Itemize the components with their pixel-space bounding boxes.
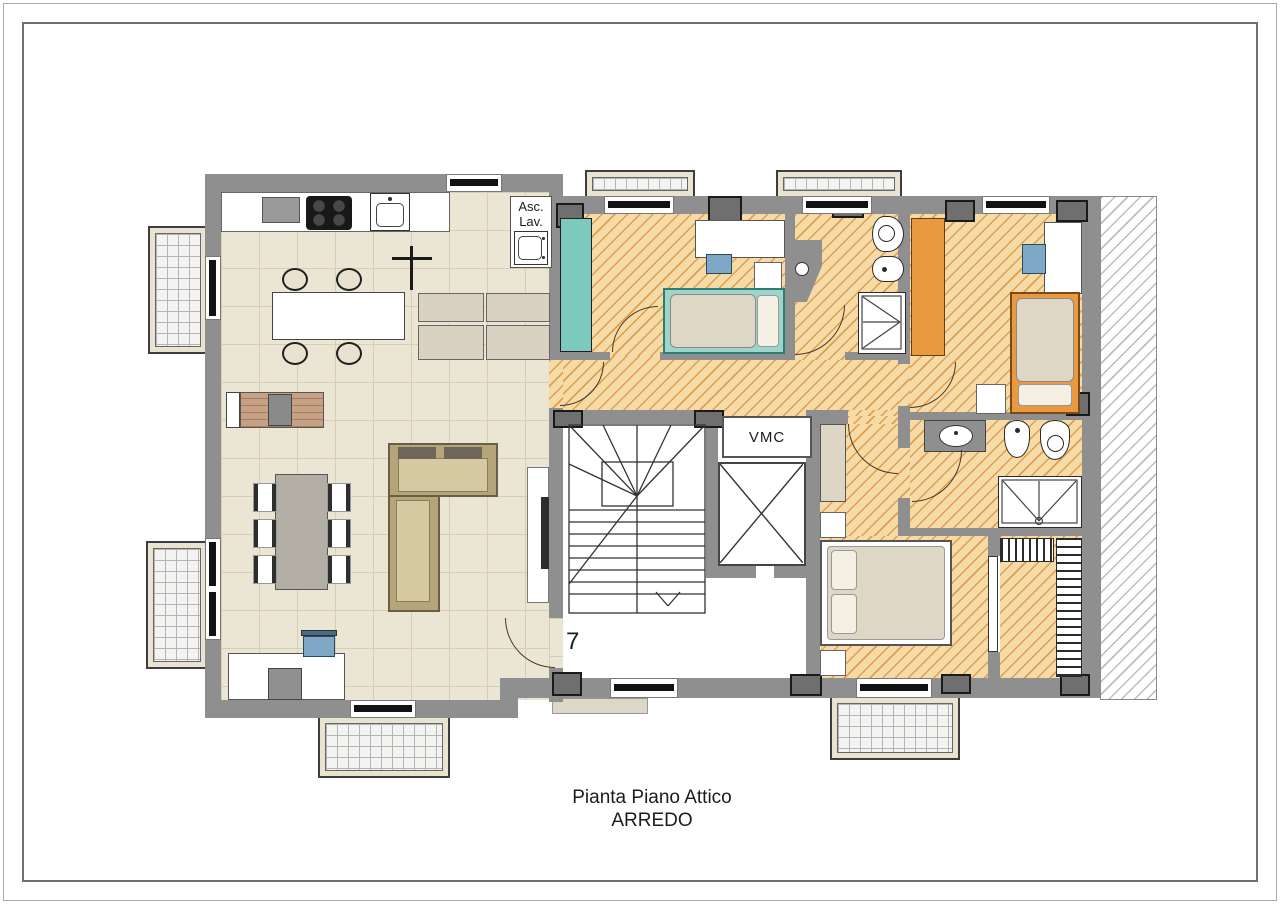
window-glass xyxy=(209,542,216,586)
drawing-title: Pianta Piano Attico ARREDO xyxy=(502,786,802,832)
wardrobe-master xyxy=(820,424,846,502)
shower-tray xyxy=(858,292,906,354)
tv-icon xyxy=(541,497,549,569)
shower-drain-lines xyxy=(859,293,904,352)
mattress xyxy=(1016,298,1074,382)
dining-table xyxy=(275,474,328,590)
closet-divider-wall xyxy=(988,652,1000,690)
bathroom2-bottom-wall xyxy=(898,528,1082,536)
pier xyxy=(945,200,975,222)
utility-closet: Asc. Lav. xyxy=(510,196,552,268)
closet-shelves xyxy=(1056,538,1082,677)
desk-chair xyxy=(706,254,732,274)
stair-elevator-wall xyxy=(706,424,718,578)
balcony-grid xyxy=(592,177,688,191)
elevator-bottom-wall xyxy=(706,566,756,578)
sideboard-base xyxy=(226,392,240,428)
window-glass xyxy=(209,592,216,636)
nightstand xyxy=(754,262,782,290)
dining-chair xyxy=(328,556,350,583)
window-glass xyxy=(608,201,670,208)
sideboard-center xyxy=(268,394,292,426)
mattress xyxy=(670,294,756,348)
kitchen-island-table xyxy=(272,292,405,340)
vmc-label: VMC xyxy=(724,429,810,446)
desk-chair xyxy=(303,636,335,657)
pillow xyxy=(757,295,779,347)
pillow xyxy=(1018,384,1072,406)
window-glass xyxy=(354,705,412,712)
balcony-bottom-1 xyxy=(318,716,450,778)
apartment-number: 7 xyxy=(566,628,579,656)
stove-icon xyxy=(306,196,352,230)
bed-double xyxy=(820,540,952,646)
floor-plan-sheet: Asc. Lav. xyxy=(0,0,1280,904)
stool xyxy=(282,342,308,365)
washer-icon xyxy=(514,231,548,265)
pier xyxy=(1056,200,1088,222)
sink-basin xyxy=(939,425,973,447)
sliding-door-leaf xyxy=(988,556,998,652)
drawing-title-line1: Pianta Piano Attico xyxy=(502,786,802,809)
pier xyxy=(1060,674,1090,696)
window-glass xyxy=(614,684,674,691)
balcony-grid xyxy=(837,703,953,753)
exterior-wall-right xyxy=(1082,196,1100,698)
desk-bedroom2 xyxy=(1044,222,1082,294)
window-glass xyxy=(986,201,1046,208)
pillow xyxy=(831,550,857,590)
utility-closet-label-line1: Asc. xyxy=(518,199,543,214)
toilet-bowl xyxy=(878,225,895,242)
sink-counter xyxy=(924,420,986,452)
elevator-bottom-wall xyxy=(774,566,818,578)
wardrobe-orange xyxy=(911,218,945,356)
balcony-top-1 xyxy=(585,170,695,198)
corridor-floor xyxy=(562,356,898,416)
elevator-x-icon xyxy=(720,464,803,563)
bed-single-1 xyxy=(663,288,785,354)
wardrobe-unit xyxy=(418,325,484,360)
shower-tray xyxy=(998,476,1082,528)
pier xyxy=(708,196,742,222)
exterior-wall-top-left xyxy=(205,174,562,192)
balcony-grid xyxy=(325,723,443,771)
wardrobe-unit xyxy=(486,325,550,360)
stairs xyxy=(568,424,706,614)
bidet-icon xyxy=(872,256,904,282)
washer-drum xyxy=(518,236,542,260)
balcony-left-bottom xyxy=(146,541,208,669)
washer-knob xyxy=(542,237,545,240)
balcony-left-top xyxy=(148,226,208,354)
stool xyxy=(336,342,362,365)
kitchen-living-floor xyxy=(221,192,549,700)
pier xyxy=(552,672,582,696)
living-partition-wall xyxy=(549,408,563,618)
corridor-top-wall xyxy=(562,352,610,360)
vmc-box: VMC xyxy=(722,416,812,458)
faucet-dot xyxy=(954,431,958,435)
range-hood xyxy=(262,197,300,223)
ceiling-cross-mark xyxy=(410,246,413,290)
window-glass xyxy=(860,684,928,691)
utility-closet-label-line2: Lav. xyxy=(519,214,543,229)
wardrobe-unit xyxy=(418,293,484,322)
bidet-faucet xyxy=(1015,428,1020,433)
sofa-cushion xyxy=(396,500,430,602)
bathroom2-threshold xyxy=(898,448,910,498)
entrance-landing xyxy=(552,698,648,714)
nightstand xyxy=(820,512,846,538)
window-glass xyxy=(806,201,868,208)
exterior-wall-step xyxy=(500,678,518,718)
dining-chair xyxy=(328,484,350,511)
sofa-back-cushion xyxy=(398,447,436,459)
dining-chair xyxy=(328,520,350,547)
balcony-grid xyxy=(783,177,895,191)
radiator-icon xyxy=(1000,538,1054,562)
window-glass xyxy=(450,179,498,186)
washer-knob xyxy=(542,256,545,259)
elevator-shaft xyxy=(718,462,806,566)
stool xyxy=(282,268,308,291)
utility-closet-label: Asc. Lav. xyxy=(511,199,551,229)
nightstand xyxy=(820,650,846,676)
window-glass xyxy=(209,260,216,316)
pier xyxy=(790,674,822,696)
desk-drawer xyxy=(268,668,302,700)
toilet-bowl xyxy=(1047,435,1064,452)
desk-chair xyxy=(1022,244,1046,274)
pier xyxy=(941,674,971,694)
sink-basin xyxy=(376,203,404,227)
drawing-title-line2: ARREDO xyxy=(502,809,802,832)
stool xyxy=(336,268,362,291)
nightstand xyxy=(976,384,1006,414)
balcony-bottom-2 xyxy=(830,696,960,760)
bathroom2-left-wall xyxy=(898,406,910,448)
wardrobe-teal xyxy=(560,218,592,352)
desk-chair-back xyxy=(301,630,337,636)
bed-single-2 xyxy=(1010,292,1080,414)
sofa-back-cushion xyxy=(444,447,482,459)
shower-drain-lines xyxy=(999,477,1080,526)
toilet-icon xyxy=(872,216,904,252)
sink-basin xyxy=(795,262,809,276)
balcony-grid xyxy=(155,233,201,347)
corridor-bottom-wall xyxy=(820,410,848,424)
closet-divider-wall xyxy=(988,536,1000,556)
adjacent-roof-hatch xyxy=(1100,196,1157,700)
pillow xyxy=(831,594,857,634)
kitchen-sink-icon xyxy=(370,193,410,231)
sofa-cushion xyxy=(398,458,488,492)
desk-bedroom1 xyxy=(695,220,785,258)
dining-chair xyxy=(254,556,276,583)
dining-chair xyxy=(254,520,276,547)
wardrobe-unit xyxy=(486,293,550,322)
balcony-grid xyxy=(153,548,201,662)
dining-chair xyxy=(254,484,276,511)
bidet-faucet xyxy=(882,267,887,272)
balcony-top-2 xyxy=(776,170,902,198)
faucet-dot xyxy=(388,197,392,201)
corridor-east-patch xyxy=(848,416,898,424)
bedroom2-threshold xyxy=(898,364,910,406)
